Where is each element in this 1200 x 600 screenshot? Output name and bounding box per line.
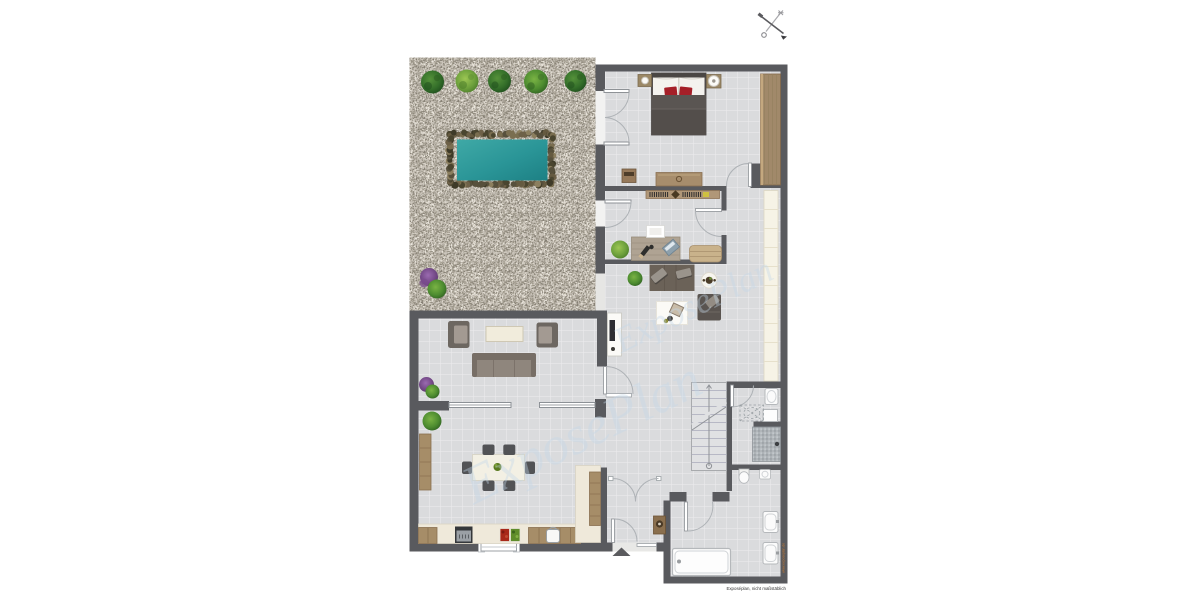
svg-text:www.exposeplan.de: www.exposeplan.de	[782, 543, 786, 573]
svg-text:Exposéplan, nicht maßstäblich: Exposéplan, nicht maßstäblich	[726, 586, 786, 591]
